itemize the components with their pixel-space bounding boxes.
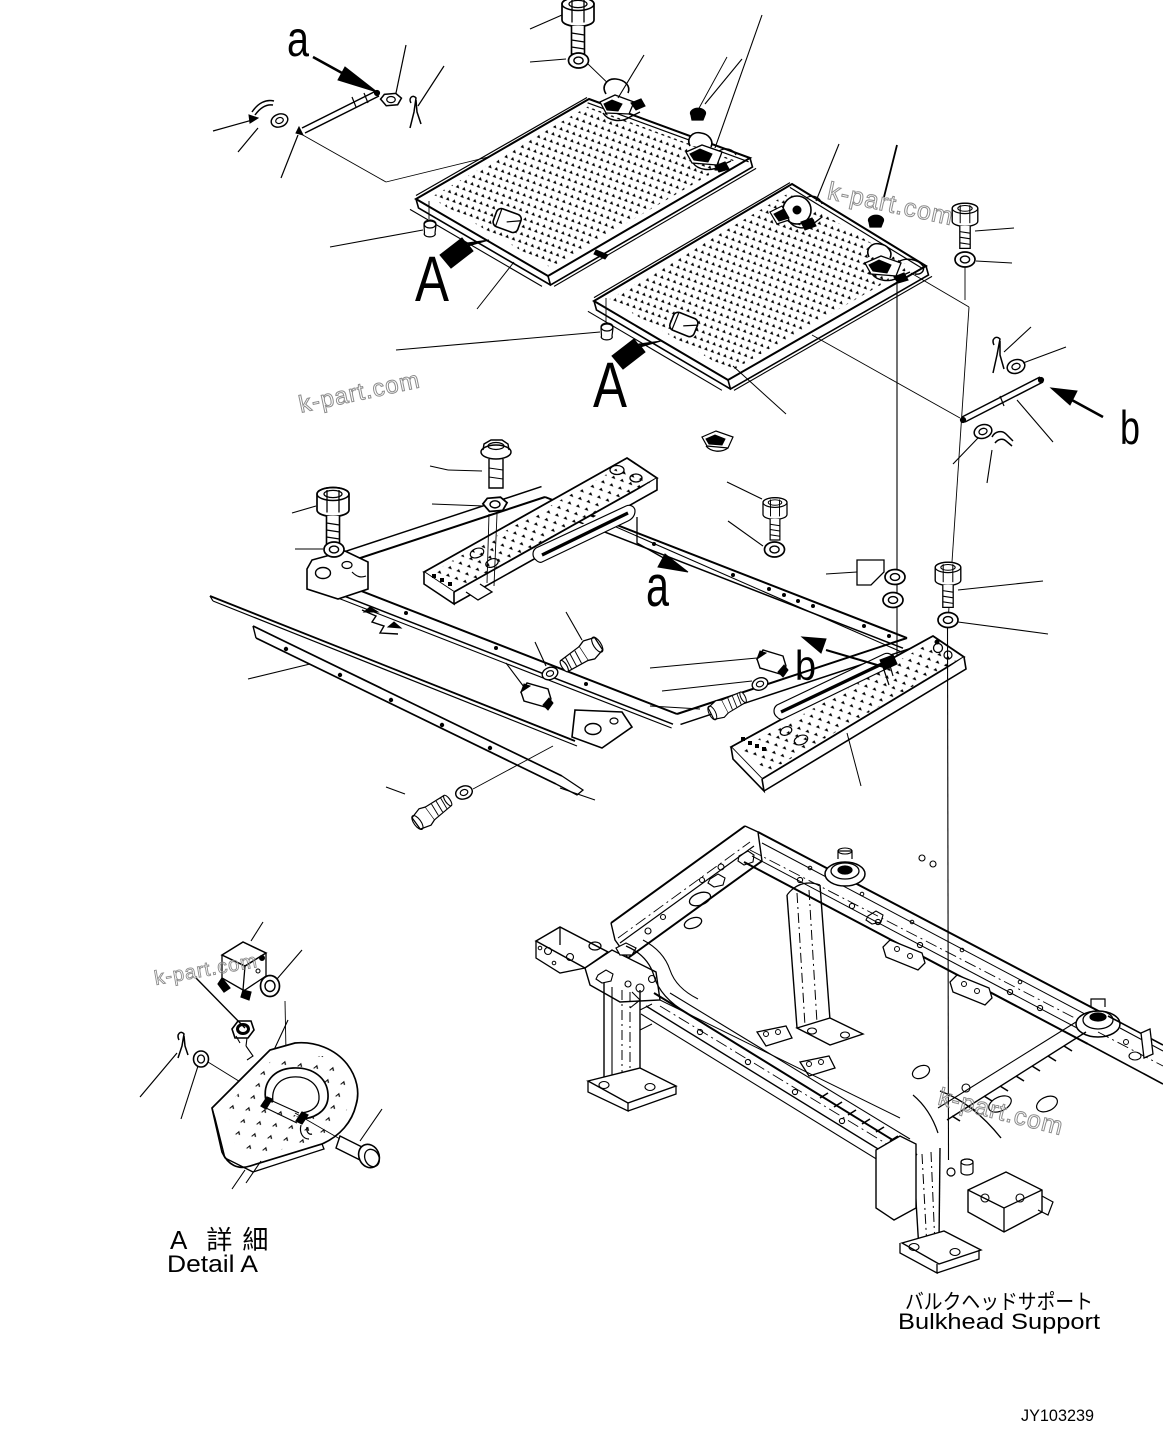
svg-text:b: b — [1120, 401, 1140, 454]
svg-text:A: A — [593, 349, 627, 421]
svg-text:JY103239: JY103239 — [1021, 1406, 1094, 1425]
svg-text:a: a — [646, 554, 670, 619]
svg-text:Bulkhead Support: Bulkhead Support — [898, 1309, 1100, 1334]
svg-text:a: a — [287, 11, 309, 67]
svg-text:Detail A: Detail A — [167, 1251, 258, 1278]
svg-text:A: A — [415, 243, 449, 315]
svg-text:b: b — [795, 642, 816, 689]
